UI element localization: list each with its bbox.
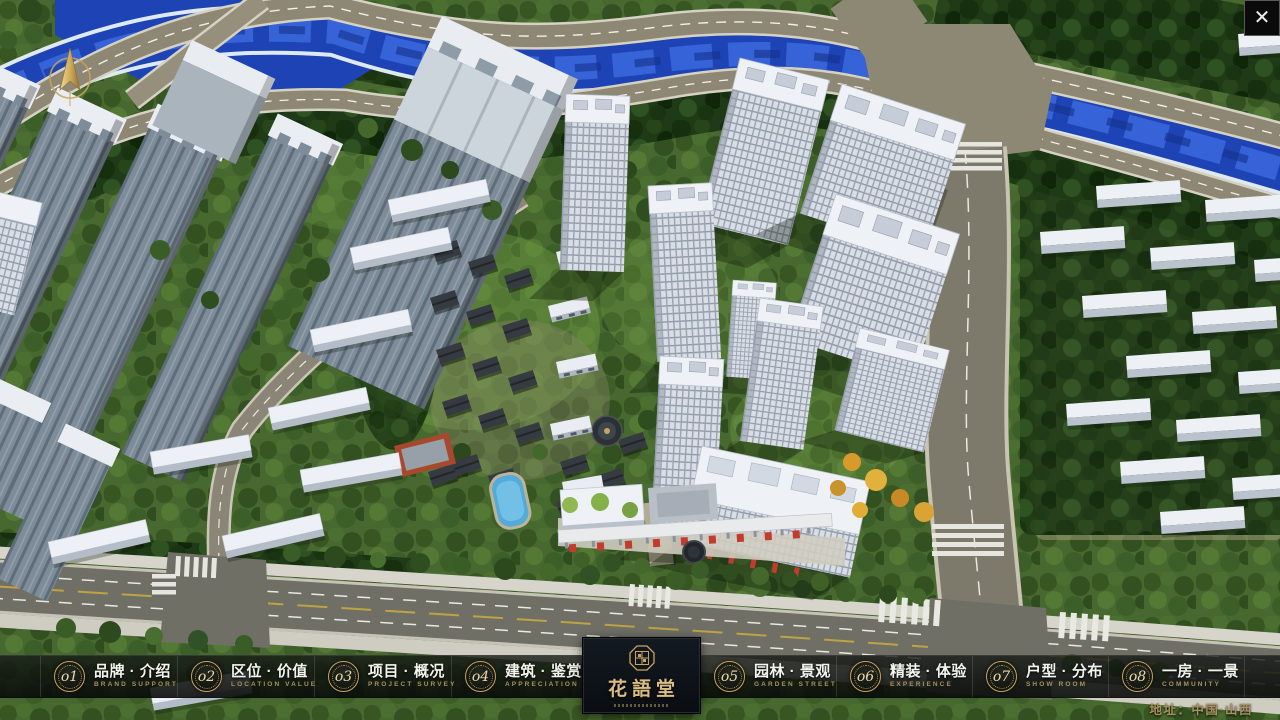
nav-sublabel: LOCATION VALUE <box>231 682 317 689</box>
pavilion <box>592 416 622 446</box>
nav-label: 项目 · 概况 <box>368 664 457 679</box>
close-icon[interactable]: ✕ <box>1244 0 1280 36</box>
nav-label: 区位 · 价值 <box>231 664 317 679</box>
nav-badge-2: o2 <box>191 661 222 692</box>
nav-item-interior[interactable]: o6 精装 · 体验 EXPERIENCE <box>836 656 972 697</box>
nav-item-project[interactable]: o3 项目 · 概况 PROJECT SURVEY <box>314 656 451 697</box>
nav-sublabel: SHOW ROOM <box>1026 682 1103 689</box>
nav-item-brand[interactable]: o1 品牌 · 介绍 BRAND SUPPORT <box>40 656 177 697</box>
nav-item-floorplan[interactable]: o7 户型 · 分布 SHOW ROOM <box>972 656 1108 697</box>
logo-title: 花語堂 <box>603 674 680 701</box>
nav-badge-7: o7 <box>986 661 1017 692</box>
nav-label: 一房 · 一景 <box>1162 664 1239 679</box>
nav-sublabel: COMMUNITY <box>1162 682 1239 689</box>
masterplan-render <box>0 0 1280 720</box>
nav-item-architecture[interactable]: o4 建筑 · 鉴赏 APPRECIATION <box>451 656 583 697</box>
logo-subtitle-line <box>614 704 670 707</box>
nav-label: 户型 · 分布 <box>1026 664 1103 679</box>
nav-item-garden[interactable]: o5 园林 · 景观 GARDEN STREET <box>700 656 836 697</box>
nav-item-views[interactable]: o8 一房 · 一景 COMMUNITY <box>1108 656 1245 697</box>
nav-badge-6: o6 <box>850 661 881 692</box>
nav-sublabel: APPRECIATION <box>505 682 582 689</box>
nav-badge-4: o4 <box>465 661 496 692</box>
nav-sublabel: EXPERIENCE <box>890 682 967 689</box>
nav-sublabel: GARDEN STREET <box>754 682 837 689</box>
octagonal-seal-icon <box>629 645 655 671</box>
nav-badge-8: o8 <box>1122 661 1153 692</box>
nav-badge-3: o3 <box>328 661 359 692</box>
nav-label: 品牌 · 介绍 <box>94 664 178 679</box>
presentation-root: ✕ o1 品牌 · 介绍 BRAND SUPPORT o2 区位 · 价值 LO… <box>0 0 1280 720</box>
nav-label: 园林 · 景观 <box>754 664 837 679</box>
address-line: 地址：中国·山西 <box>1149 699 1253 718</box>
nav-label: 精装 · 体验 <box>890 664 967 679</box>
nav-sublabel: PROJECT SURVEY <box>368 682 457 689</box>
nav-item-location[interactable]: o2 区位 · 价值 LOCATION VALUE <box>177 656 314 697</box>
nav-badge-1: o1 <box>54 661 85 692</box>
project-logo[interactable]: 花語堂 <box>583 638 700 713</box>
nav-label: 建筑 · 鉴赏 <box>505 664 582 679</box>
nav-sublabel: BRAND SUPPORT <box>94 682 178 689</box>
nav-badge-5: o5 <box>714 661 745 692</box>
